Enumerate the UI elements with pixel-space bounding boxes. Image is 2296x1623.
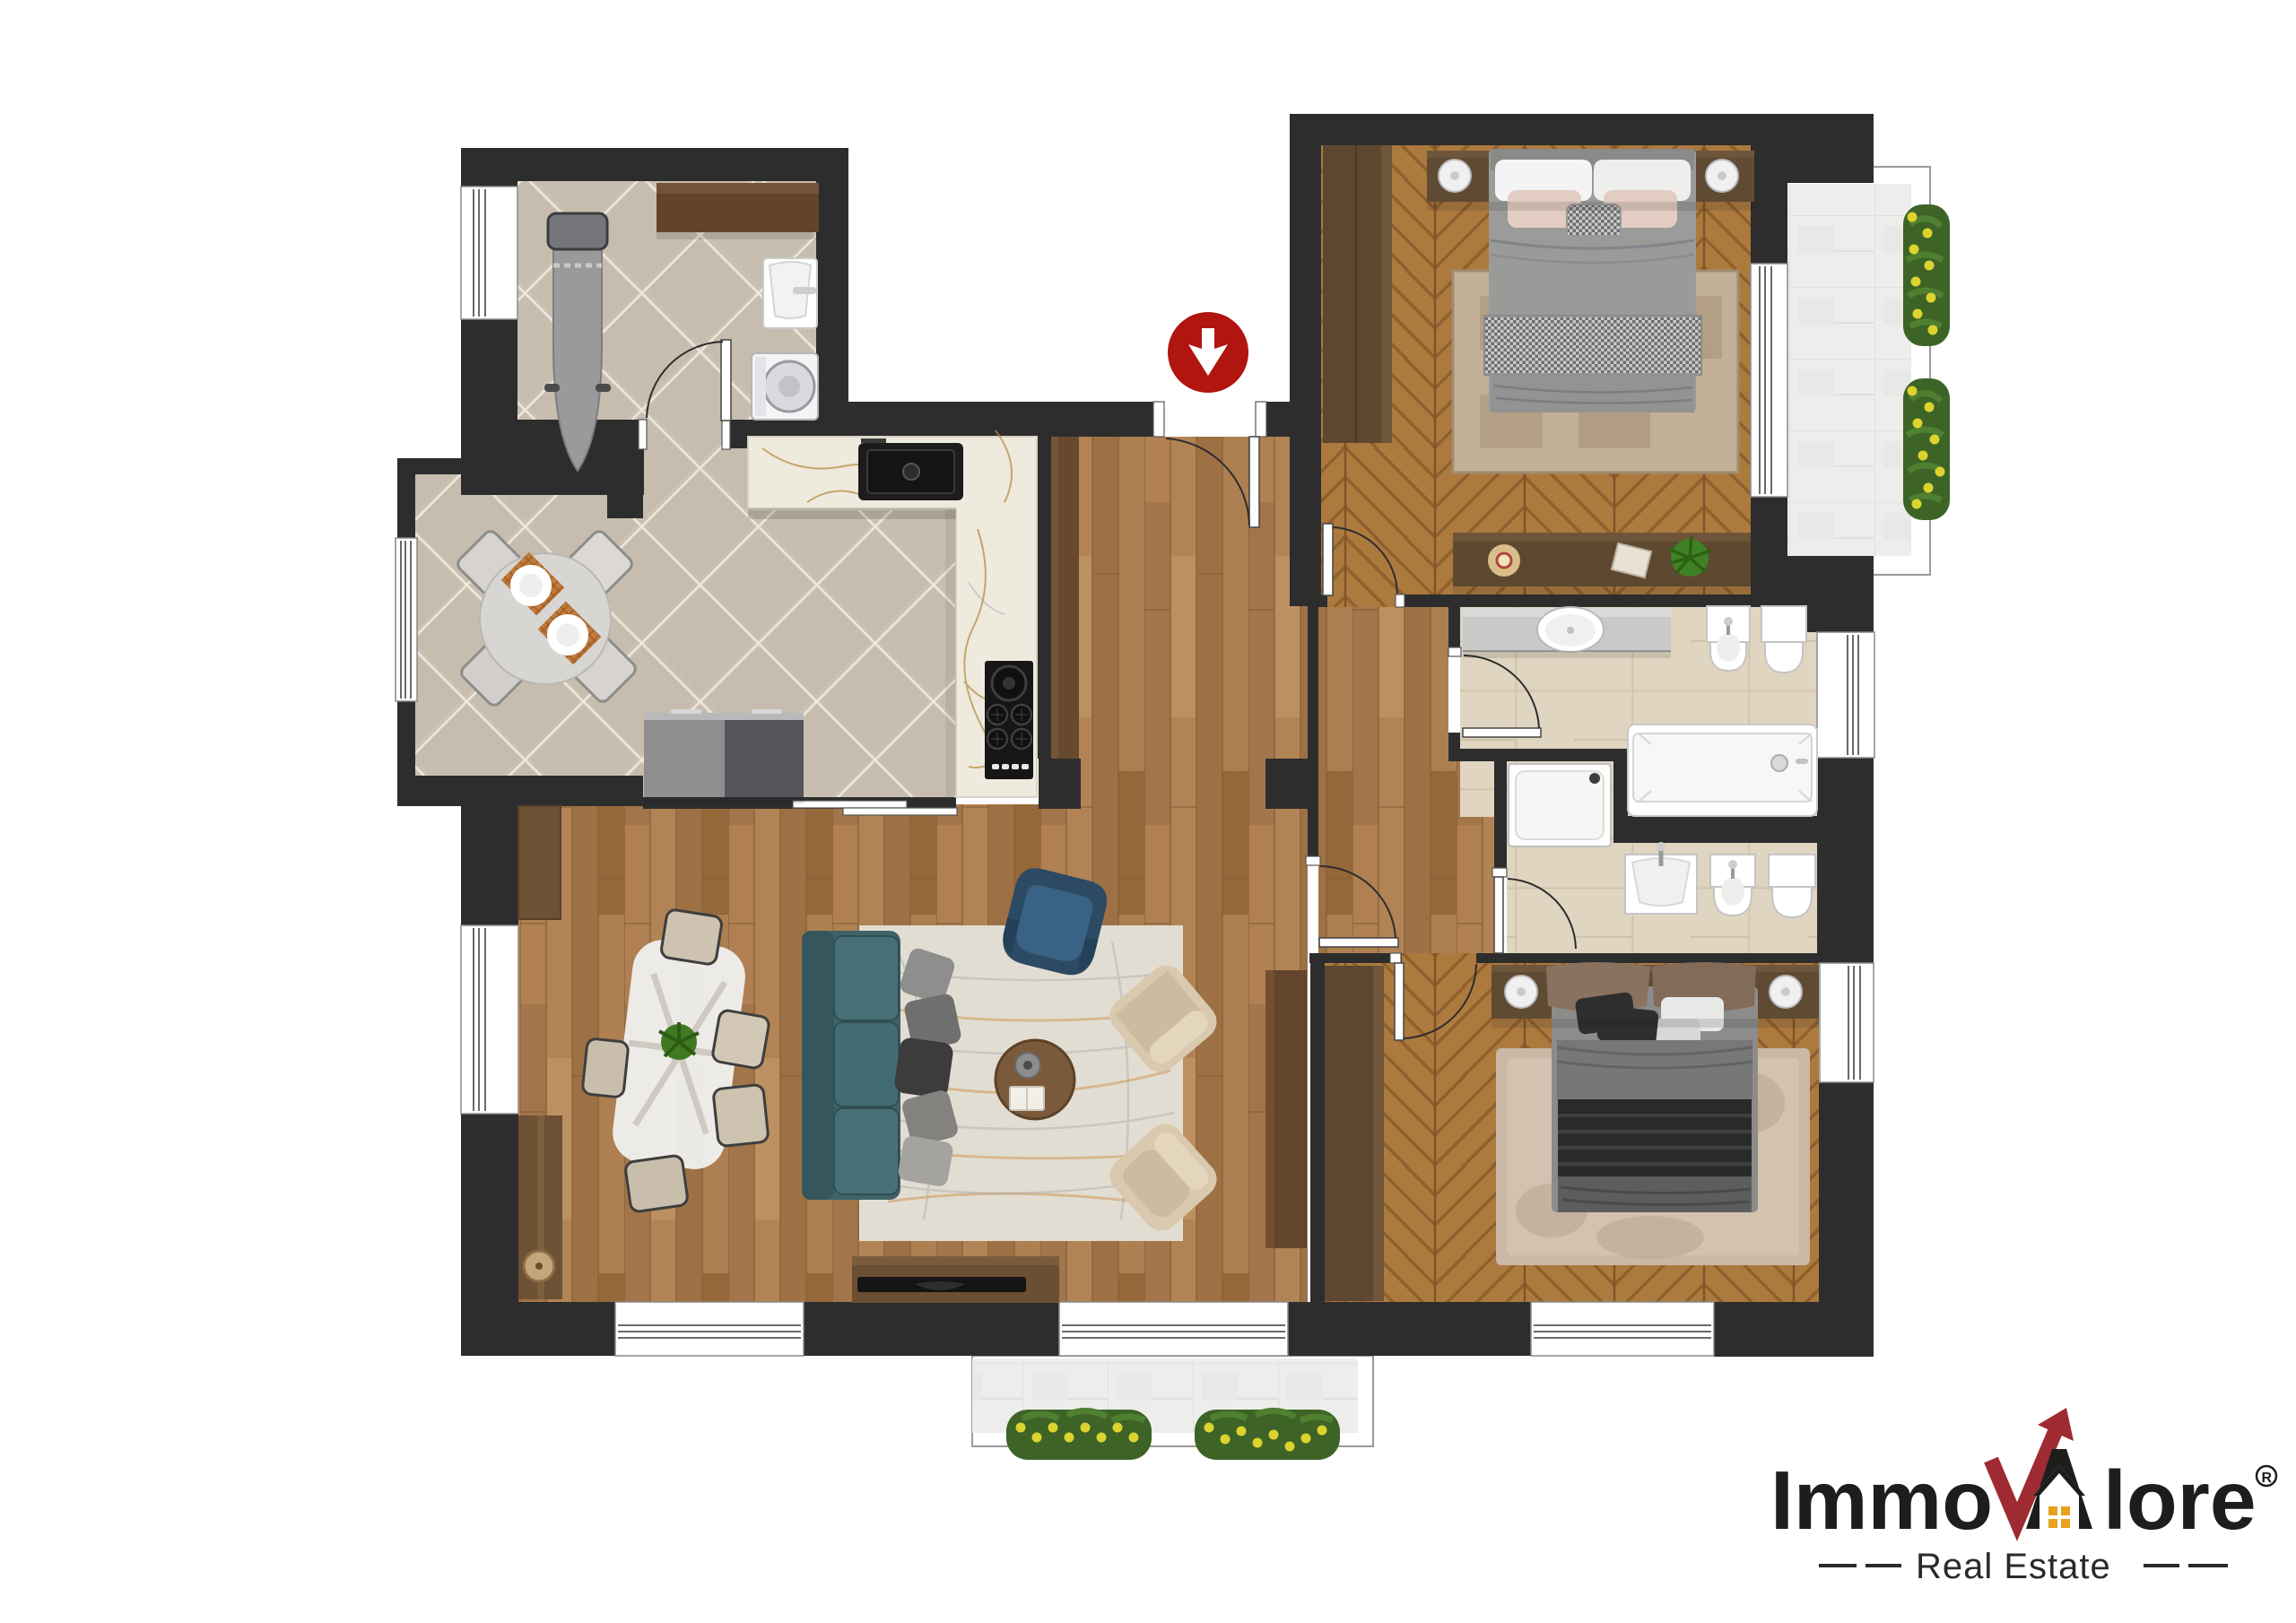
svg-text:R: R: [2262, 1471, 2273, 1486]
svg-text:Immo: Immo: [1770, 1454, 1993, 1547]
svg-text:lore: lore: [2103, 1454, 2257, 1547]
svg-text:Real Estate: Real Estate: [1916, 1547, 2111, 1586]
